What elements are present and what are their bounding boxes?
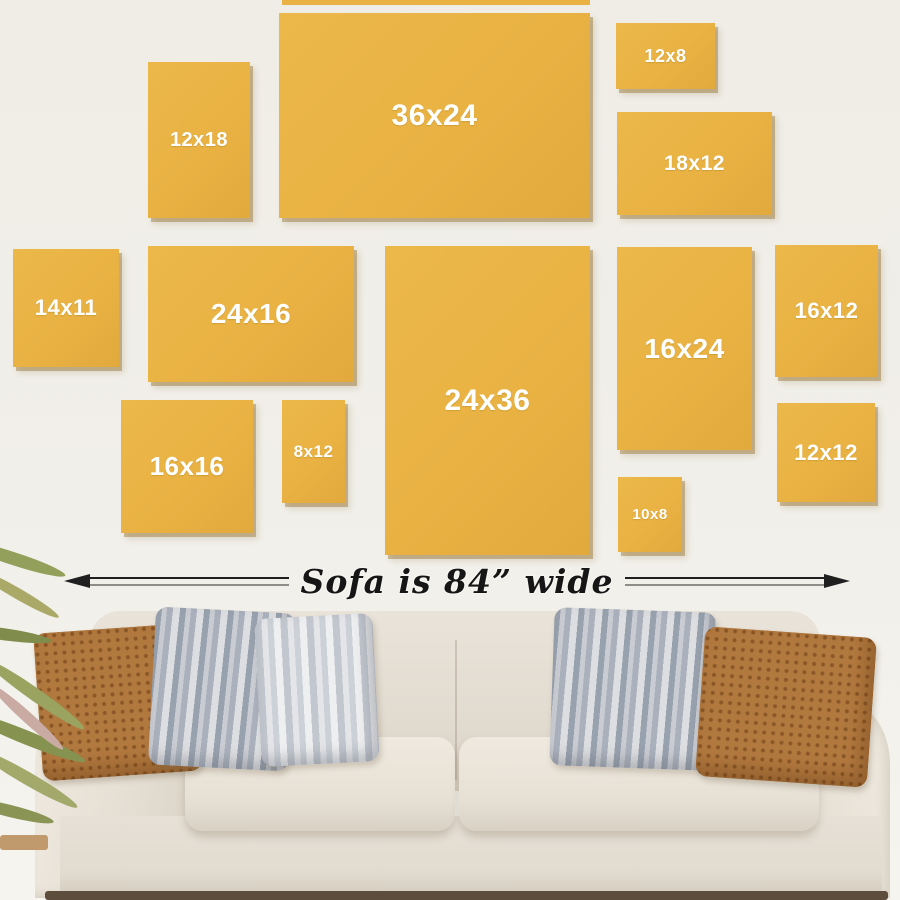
pillow-rust-right — [695, 626, 877, 788]
sofa-width-measure: Sofa is 84” wide — [64, 558, 850, 604]
size-frame-36x24: 36x24 — [279, 13, 590, 218]
plant-leaf — [0, 535, 67, 581]
size-frame-24x36: 24x36 — [385, 246, 590, 555]
size-frame-10x8: 10x8 — [618, 477, 682, 552]
wall-art-size-guide: 12x18 36x24 12x8 18x12 14x11 24x16 24x36… — [0, 0, 900, 900]
size-label-14x11: 14x11 — [35, 295, 97, 321]
size-frame-12x8: 12x8 — [616, 23, 715, 89]
size-frame-16x24: 16x24 — [617, 247, 752, 450]
size-frame-14x11: 14x11 — [13, 249, 119, 367]
size-frame-16x16: 16x16 — [121, 400, 253, 533]
size-label-16x24: 16x24 — [644, 333, 724, 365]
size-frame-12x18: 12x18 — [148, 62, 250, 218]
sofa-back-seam — [455, 640, 457, 780]
floor-shadow — [45, 891, 888, 900]
size-label-18x12: 18x12 — [664, 152, 725, 176]
cropped-frame-strip — [282, 0, 590, 5]
size-label-24x36: 24x36 — [445, 384, 531, 418]
size-frame-24x16: 24x16 — [148, 246, 354, 382]
size-frame-12x12: 12x12 — [777, 403, 875, 502]
size-frame-8x12: 8x12 — [282, 400, 345, 503]
size-label-12x18: 12x18 — [170, 129, 228, 152]
pillow-striped-left-light — [254, 613, 380, 767]
size-label-36x24: 36x24 — [392, 99, 478, 133]
size-frame-16x12: 16x12 — [775, 245, 878, 377]
size-label-8x12: 8x12 — [294, 442, 334, 462]
size-label-16x12: 16x12 — [795, 298, 859, 324]
pillow-striped-right — [549, 607, 716, 771]
size-frame-18x12: 18x12 — [617, 112, 772, 215]
plant-pot-edge — [0, 835, 48, 850]
measure-line-left — [90, 577, 289, 586]
arrow-right-icon — [824, 574, 850, 588]
size-label-12x12: 12x12 — [794, 440, 858, 466]
measure-line-right — [625, 577, 824, 586]
sofa-width-label: Sofa is 84” wide — [301, 562, 614, 601]
size-label-16x16: 16x16 — [150, 451, 225, 482]
size-label-10x8: 10x8 — [632, 506, 667, 523]
arrow-left-icon — [64, 574, 90, 588]
size-label-12x8: 12x8 — [644, 46, 686, 67]
size-label-24x16: 24x16 — [211, 298, 291, 330]
